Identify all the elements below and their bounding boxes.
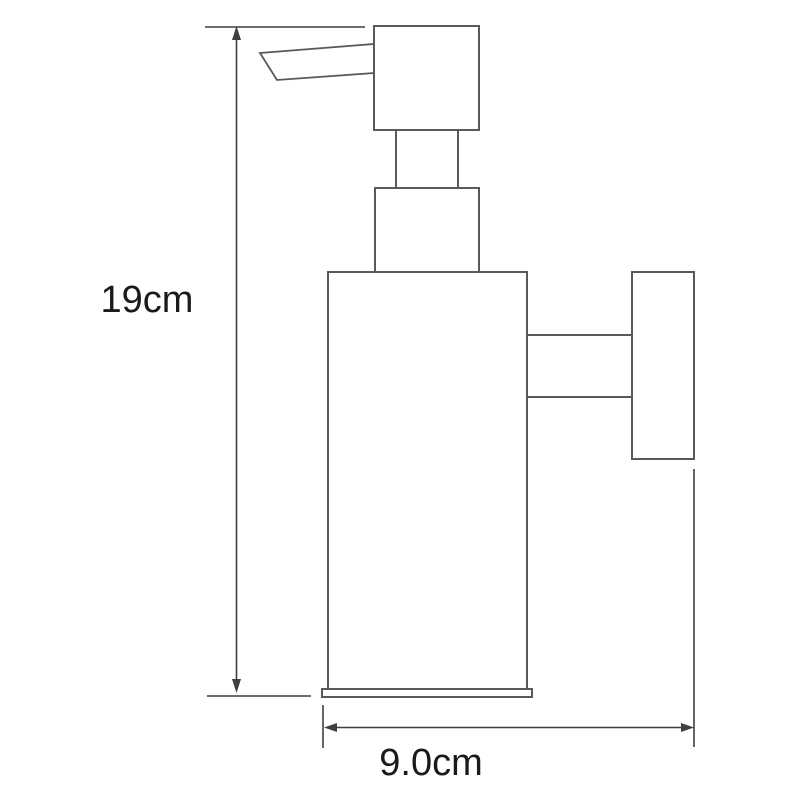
soap-dispenser-diagram: 19cm 9.0cm [0,0,800,800]
arrow-down-icon [232,679,241,693]
body-shape [328,272,527,689]
arrow-up-icon [232,26,241,40]
mount-arm-shape [527,335,632,397]
arrow-right-icon [681,723,694,732]
dispenser-outline [260,26,694,697]
collar-shape [375,188,479,272]
pump-head-shape [374,26,479,130]
height-dimension: 19cm [101,26,365,696]
base-plate-shape [322,689,532,697]
arrow-left-icon [324,723,337,732]
width-dimension-label: 9.0cm [379,742,482,784]
dimension-drawing-canvas: 19cm 9.0cm [0,0,800,800]
spout-shape [260,44,374,80]
height-dimension-label: 19cm [101,279,194,321]
wall-plate-shape [632,272,694,459]
neck-shape [396,130,458,189]
